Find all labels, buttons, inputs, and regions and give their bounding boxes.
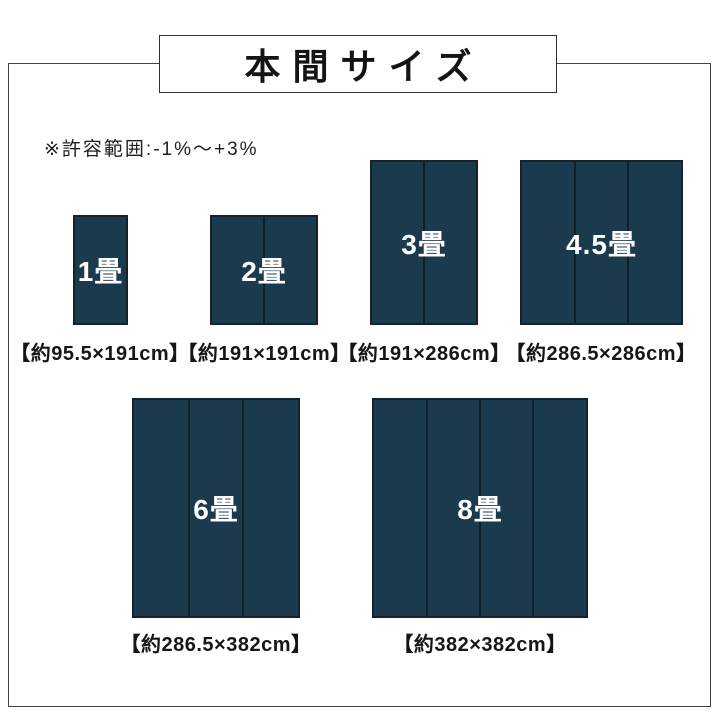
mat-3jo-label: 3畳 xyxy=(401,223,447,263)
mat-8jo: 8畳 xyxy=(372,398,588,618)
mat-1jo: 1畳 xyxy=(73,215,128,325)
mat-4-5jo: 4.5畳 xyxy=(520,160,683,325)
mat-1jo-label: 1畳 xyxy=(78,250,124,290)
mat-3jo: 3畳 xyxy=(370,160,478,325)
panel-divider xyxy=(426,400,428,616)
page-title: 本間サイズ xyxy=(245,38,484,90)
mat-1jo-caption: 【約95.5×191cm】 xyxy=(10,337,189,366)
panel-divider xyxy=(188,400,190,616)
panel-divider xyxy=(532,400,534,616)
mat-6jo-caption: 【約286.5×382cm】 xyxy=(120,628,311,657)
mat-2jo: 2畳 xyxy=(210,215,318,325)
tolerance-note: ※許容範囲:-1%〜+3% xyxy=(44,134,259,161)
mat-3jo-caption: 【約191×286cm】 xyxy=(337,337,510,366)
mat-4-5jo-caption: 【約286.5×286cm】 xyxy=(505,337,696,366)
mat-4-5jo-label: 4.5畳 xyxy=(566,223,637,263)
mat-6jo-label: 6畳 xyxy=(193,488,239,528)
mat-8jo-label: 8畳 xyxy=(457,488,503,528)
mat-2jo-label: 2畳 xyxy=(241,250,287,290)
panel-divider xyxy=(242,400,244,616)
mat-6jo: 6畳 xyxy=(132,398,300,618)
mat-2jo-caption: 【約191×191cm】 xyxy=(177,337,350,366)
title-box: 本間サイズ xyxy=(159,35,557,93)
mat-8jo-caption: 【約382×382cm】 xyxy=(393,628,566,657)
